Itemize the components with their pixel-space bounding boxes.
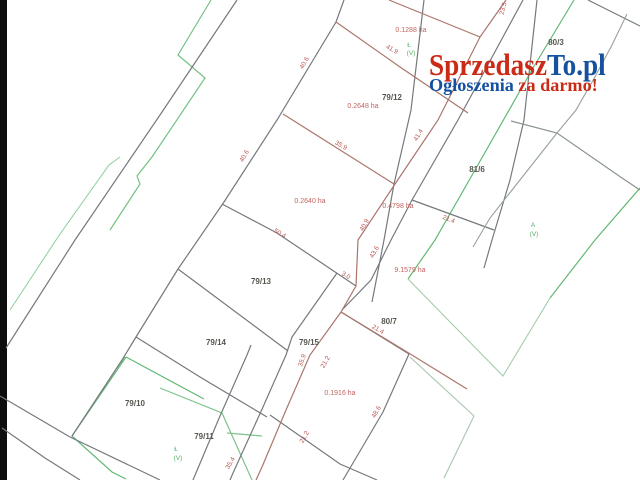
svg-text:0.4798 ha: 0.4798 ha — [382, 203, 413, 210]
svg-text:79/11: 79/11 — [194, 432, 214, 441]
svg-text:(V): (V) — [174, 455, 183, 462]
svg-text:80/7: 80/7 — [381, 317, 397, 326]
svg-text:79/15: 79/15 — [299, 338, 320, 347]
svg-text:79/13: 79/13 — [251, 277, 272, 286]
svg-text:Ł: Ł — [174, 446, 178, 453]
svg-text:A: A — [531, 222, 536, 229]
svg-text:79/12: 79/12 — [382, 93, 403, 102]
svg-text:79/10: 79/10 — [125, 399, 146, 408]
svg-text:0.1916 ha: 0.1916 ha — [324, 390, 355, 397]
svg-text:Ł: Ł — [407, 42, 411, 49]
svg-text:0.1288 ha: 0.1288 ha — [395, 27, 426, 34]
svg-text:81/6: 81/6 — [469, 165, 485, 174]
svg-text:0.2648 ha: 0.2648 ha — [347, 103, 378, 110]
svg-text:(V): (V) — [407, 50, 416, 57]
svg-text:0.2640 ha: 0.2640 ha — [294, 198, 325, 205]
svg-text:(V): (V) — [530, 231, 539, 238]
svg-text:79/14: 79/14 — [206, 338, 227, 347]
svg-text:9.1579 ha: 9.1579 ha — [394, 267, 425, 274]
